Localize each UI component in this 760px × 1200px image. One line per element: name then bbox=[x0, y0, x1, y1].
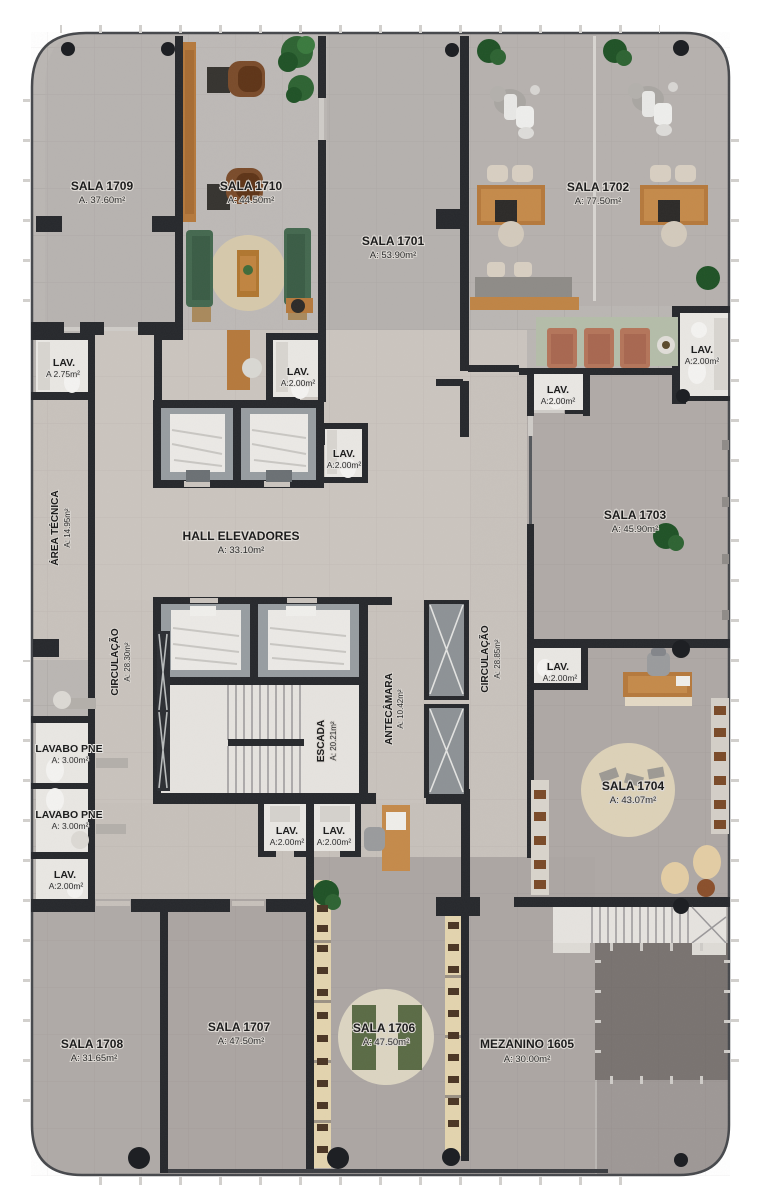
svg-text:LAV.: LAV. bbox=[323, 825, 345, 837]
svg-text:A:2.00m²: A:2.00m² bbox=[327, 460, 362, 470]
svg-text:SALA 1704: SALA 1704 bbox=[602, 779, 665, 793]
svg-text:A: 45.90m²: A: 45.90m² bbox=[612, 524, 658, 535]
svg-text:A: 14.95m²: A: 14.95m² bbox=[63, 508, 72, 547]
svg-text:A: 30.00m²: A: 30.00m² bbox=[504, 1054, 550, 1065]
svg-text:SALA 1706: SALA 1706 bbox=[353, 1021, 416, 1035]
svg-text:A:2.00m²: A:2.00m² bbox=[270, 837, 305, 847]
svg-text:LAV.: LAV. bbox=[276, 825, 298, 837]
svg-text:ANTECÂMARA: ANTECÂMARA bbox=[382, 673, 395, 745]
svg-text:SALA 1710: SALA 1710 bbox=[220, 179, 283, 193]
svg-text:LAV.: LAV. bbox=[547, 384, 569, 396]
svg-text:A: 47.50m²: A: 47.50m² bbox=[363, 1037, 409, 1048]
svg-text:SALA 1707: SALA 1707 bbox=[208, 1020, 271, 1034]
svg-text:A:2.00m²: A:2.00m² bbox=[543, 673, 578, 683]
svg-text:A: 28.85m²: A: 28.85m² bbox=[493, 639, 502, 678]
svg-text:MEZANINO 1605: MEZANINO 1605 bbox=[480, 1037, 574, 1051]
svg-text:A: 20.21m²: A: 20.21m² bbox=[329, 721, 338, 760]
svg-text:ESCADA: ESCADA bbox=[316, 720, 327, 762]
svg-text:A: 77.50m²: A: 77.50m² bbox=[575, 196, 621, 207]
svg-text:A: 47.50m²: A: 47.50m² bbox=[218, 1036, 264, 1047]
svg-text:LAV.: LAV. bbox=[333, 448, 355, 460]
svg-text:A 2.75m²: A 2.75m² bbox=[46, 369, 80, 379]
svg-text:SALA 1701: SALA 1701 bbox=[362, 234, 425, 248]
svg-text:LAV.: LAV. bbox=[54, 869, 76, 881]
svg-text:A:2.00m²: A:2.00m² bbox=[281, 378, 316, 388]
svg-text:LAV.: LAV. bbox=[53, 357, 75, 369]
svg-text:A: 28.30m²: A: 28.30m² bbox=[123, 642, 132, 681]
svg-text:A:2.00m²: A:2.00m² bbox=[685, 356, 720, 366]
svg-text:A: 44.50m²: A: 44.50m² bbox=[228, 195, 274, 206]
svg-text:A: 43.07m²: A: 43.07m² bbox=[610, 795, 656, 806]
svg-text:CIRCULAÇÃO: CIRCULAÇÃO bbox=[108, 628, 121, 695]
svg-text:A: 33.10m²: A: 33.10m² bbox=[218, 545, 264, 556]
svg-text:LAV.: LAV. bbox=[547, 661, 569, 673]
svg-text:A: 3.00m²: A: 3.00m² bbox=[52, 755, 89, 765]
svg-text:A: 31.65m²: A: 31.65m² bbox=[71, 1053, 117, 1064]
svg-text:A: 3.00m²: A: 3.00m² bbox=[52, 821, 89, 831]
svg-text:A:2.00m²: A:2.00m² bbox=[317, 837, 352, 847]
svg-text:HALL ELEVADORES: HALL ELEVADORES bbox=[183, 529, 300, 543]
svg-text:LAVABO PNE: LAVABO PNE bbox=[35, 743, 102, 755]
svg-text:A. 37.60m²: A. 37.60m² bbox=[79, 195, 125, 206]
svg-text:SALA 1703: SALA 1703 bbox=[604, 508, 667, 522]
svg-text:LAV.: LAV. bbox=[691, 344, 713, 356]
svg-text:SALA 1702: SALA 1702 bbox=[567, 180, 630, 194]
svg-text:A: 10.42m²: A: 10.42m² bbox=[396, 689, 405, 728]
svg-text:ÁREA TÉCNICA: ÁREA TÉCNICA bbox=[48, 490, 61, 565]
svg-text:SALA 1709: SALA 1709 bbox=[71, 179, 134, 193]
svg-text:A:2.00m²: A:2.00m² bbox=[49, 881, 84, 891]
svg-text:A:2.00m²: A:2.00m² bbox=[541, 396, 576, 406]
svg-text:CIRCULAÇÃO: CIRCULAÇÃO bbox=[478, 625, 491, 692]
svg-text:LAV.: LAV. bbox=[287, 366, 309, 378]
svg-text:SALA 1708: SALA 1708 bbox=[61, 1037, 124, 1051]
svg-text:LAVABO PNE: LAVABO PNE bbox=[35, 809, 102, 821]
svg-text:A: 53.90m²: A: 53.90m² bbox=[370, 250, 416, 261]
